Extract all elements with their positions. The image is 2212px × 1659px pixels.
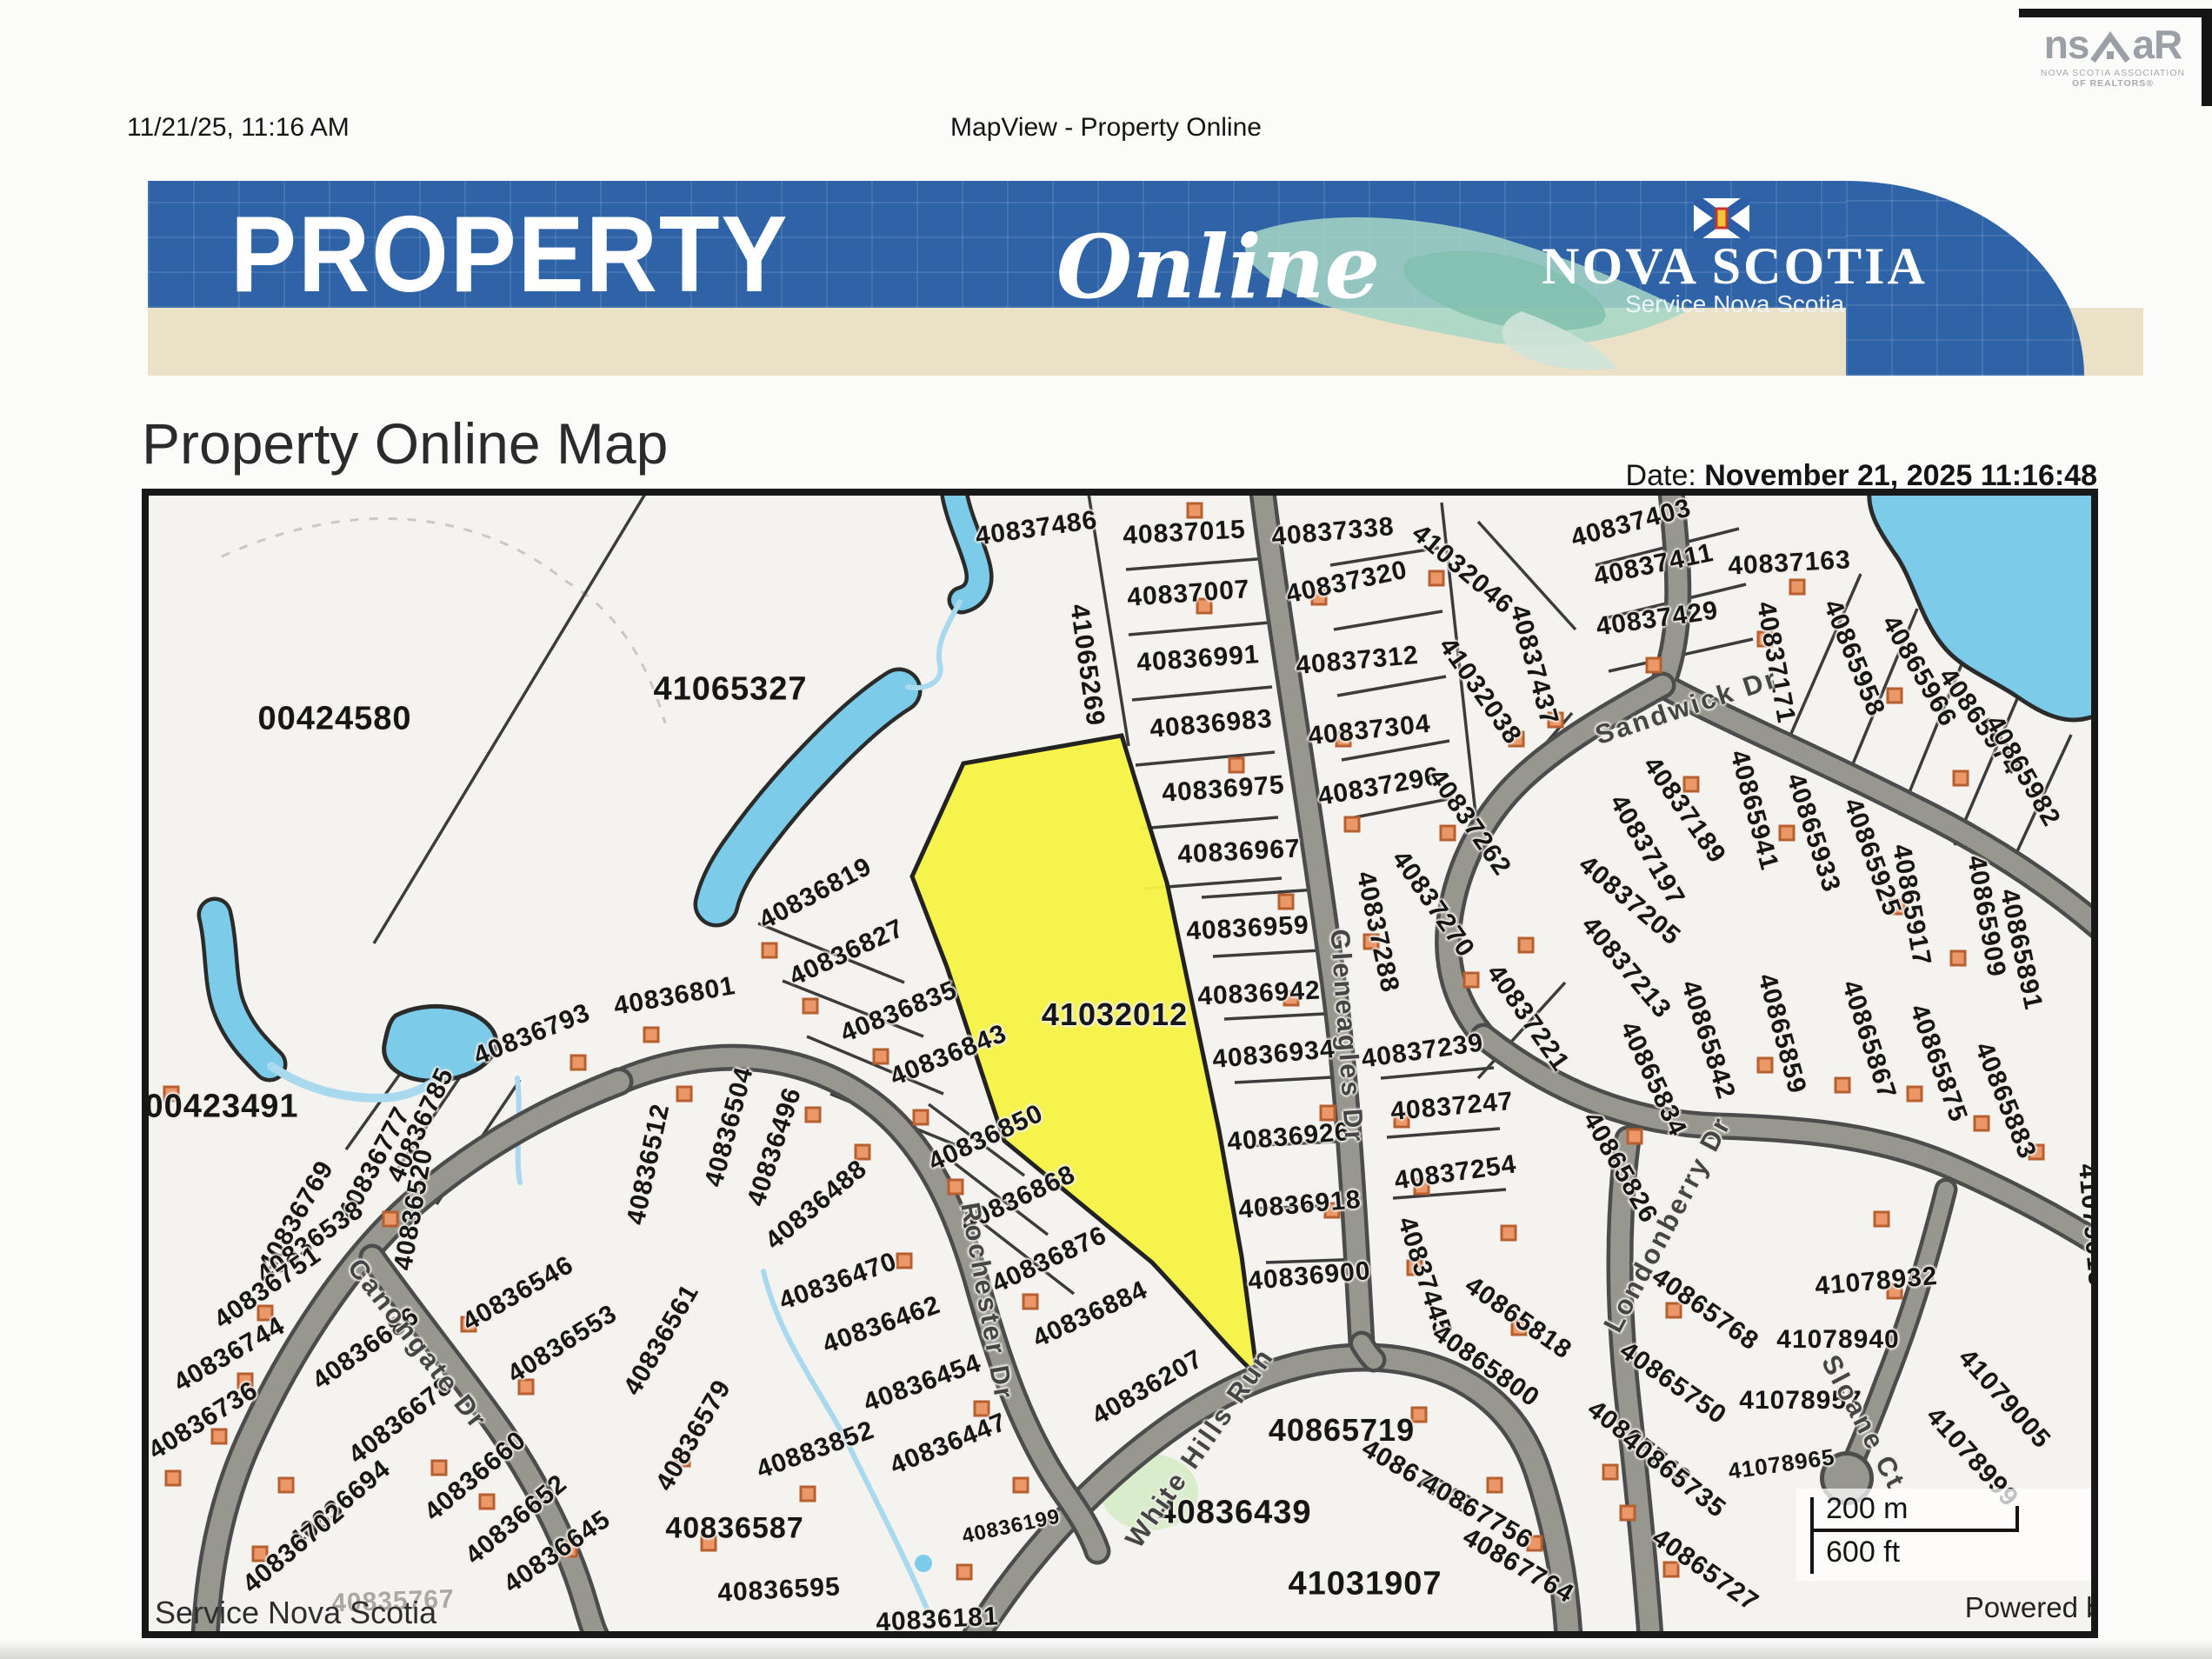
parcel-label: 00424580 [257,701,411,738]
nsar-logo: ns aR NOVA SCOTIA ASSOCIATION OF REALTOR… [2026,24,2200,89]
map-viewport[interactable]: 0042458041065327004234914103201240865719… [142,489,2098,1638]
date-label: Date: [1626,459,1696,492]
scale-bar-line [1810,1529,2019,1532]
nsar-subtitle-2: OF REALTORS® [2026,78,2200,89]
scale-metric-label: 200 m [1826,1492,1909,1526]
print-doc-title: MapView - Property Online [0,113,2212,143]
scale-bar-line [2015,1506,2019,1532]
service-ns-attribution: Service Nova Scotia [155,1595,436,1631]
nsar-ar-text: aR [2132,24,2182,64]
scale-imperial-label: 600 ft [1826,1536,1900,1569]
banner-property-text: PROPERTY [230,193,789,316]
esri-credit: Powered by Esri [1887,1591,2098,1624]
parcel-label: 41065327 [653,671,807,709]
parcel-label: 41078940 [1776,1325,1899,1355]
nova-scotia-flag-icon [1694,198,1749,238]
banner-online-text: Online [1056,216,1380,318]
parcel-label: 00423491 [144,1089,298,1126]
date-value: November 21, 2025 11:16:48 [1704,459,2097,492]
page-title: Property Online Map [142,410,668,476]
parcel-label: 40836587 [665,1512,803,1546]
house-icon [2090,30,2130,64]
scan-corner-mark [2202,9,2212,106]
nsar-ns-text: ns [2044,24,2089,64]
parcel-label: 41031907 [1288,1566,1442,1603]
page-bottom-edge [0,1640,2212,1659]
property-online-banner: PROPERTY Online NOVA SCOTIA Service Nova… [148,181,2143,376]
banner-org-subtitle: Service Nova Scotia [1517,290,1952,318]
banner-org-name: NOVA SCOTIA [1517,237,1952,296]
page: 11/21/25, 11:16 AM MapView - Property On… [0,0,2212,1659]
map-layer: 0042458041065327004234914103201240865719… [142,489,2098,1638]
scan-corner-mark [2019,9,2212,17]
parcel-label: 40836181 [875,1602,999,1637]
parcel-label: 40865719 [1269,1412,1415,1449]
credit-prefix: Powered by [1965,1591,2098,1623]
parcel-label: 41032012 [1042,996,1188,1033]
nsar-subtitle: NOVA SCOTIA ASSOCIATION [2026,68,2200,78]
scale-bar-line [1810,1497,1814,1574]
